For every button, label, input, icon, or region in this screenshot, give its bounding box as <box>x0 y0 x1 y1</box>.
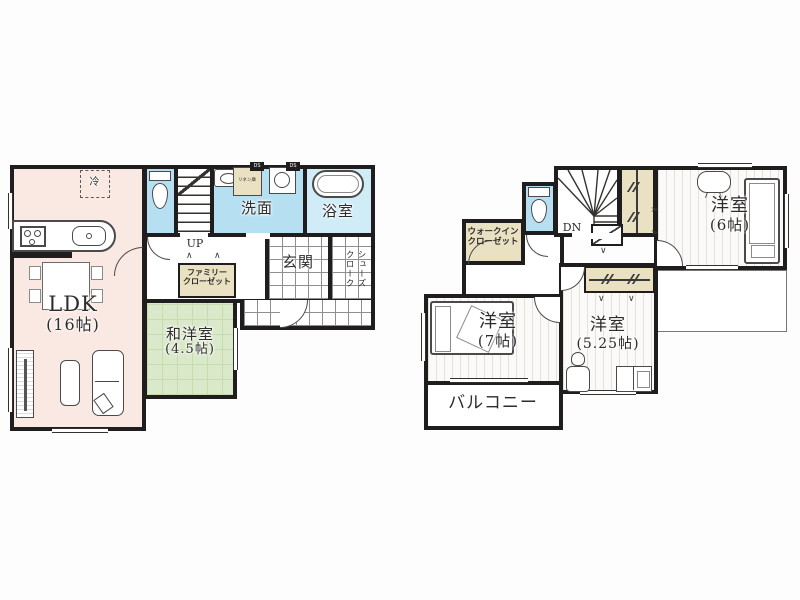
folding-door-mark: ∨ <box>651 229 660 236</box>
toilet-tank-icon <box>149 171 171 181</box>
kitchen-half-wall <box>10 252 72 258</box>
duct-space: DS <box>250 162 264 171</box>
window-bed6-right <box>784 194 789 248</box>
washing-machine-icon <box>269 167 296 194</box>
bed6-label: 洋室 (6帖) <box>688 196 772 234</box>
shoes-cloak-col2: クローク <box>342 240 354 298</box>
bed7-label: 洋室 (7帖) <box>452 312 544 350</box>
stairs-up-label: UP <box>176 238 214 251</box>
cushion <box>93 393 113 414</box>
bed6-size: (6帖) <box>688 217 772 234</box>
hanger-pole <box>589 279 650 281</box>
window-bed7-balcony <box>450 378 528 383</box>
wic-line2: クローゼット <box>464 238 522 248</box>
window-bed6-bottom <box>686 265 738 270</box>
floor-lamp-top <box>571 352 585 366</box>
stairs-dn-label: DN <box>552 222 592 235</box>
linen-label: リネン庫 <box>234 178 260 183</box>
burner-icon <box>24 230 31 237</box>
washroom-label: 洗面 <box>222 200 292 217</box>
shelf-icon <box>616 366 652 392</box>
window-ldk-bottom <box>52 428 108 433</box>
wic-label: ウォークイン クローゼット <box>464 228 522 248</box>
pillow <box>435 306 451 352</box>
bed525-label: 洋室 (5.25帖) <box>562 316 654 352</box>
toilet-tank-icon <box>528 187 550 197</box>
bed525-name: 洋室 <box>562 316 654 336</box>
bed7-name: 洋室 <box>452 312 544 333</box>
shoes-cloak-label: シューズ クローク <box>336 240 366 298</box>
hanger-pole <box>636 170 638 233</box>
shelf-divider <box>633 367 634 390</box>
washitsu-name: 和洋室 <box>145 326 235 343</box>
sink-icon <box>72 226 106 246</box>
tv-board <box>16 350 34 418</box>
refrigerator-label: 冷 <box>81 177 108 189</box>
pillow <box>751 245 775 258</box>
window-bed6-top <box>698 163 752 168</box>
family-closet-label: ファミリー クローゼット <box>180 268 234 286</box>
hanger-mark <box>630 274 636 284</box>
shelf-box <box>637 371 650 388</box>
ldk-size: (16帖) <box>28 316 118 334</box>
linen-cabinet: リネン庫 <box>233 167 262 196</box>
pendant-light-icon <box>697 171 731 193</box>
ldk-name: LDK <box>28 292 118 316</box>
roof-area <box>657 270 787 332</box>
refrigerator-icon: 冷 <box>80 170 110 198</box>
bathroom-label: 浴室 <box>308 203 368 220</box>
stairs-1f <box>174 165 214 237</box>
sofa-seam <box>95 381 119 382</box>
genkan-label: 玄関 <box>274 254 322 271</box>
folding-door-mark: ∧ <box>186 252 193 261</box>
burner-icon <box>34 230 41 237</box>
bed6-name: 洋室 <box>688 196 772 217</box>
hanger-mark <box>604 274 610 284</box>
tv-icon <box>24 359 27 411</box>
folding-door-mark: ∨ <box>628 295 635 304</box>
coffee-table <box>60 360 80 406</box>
bed7-size: (7帖) <box>452 333 544 350</box>
hanger-mark <box>630 182 636 192</box>
folding-door-mark: ∨ <box>598 295 605 304</box>
stove-icon <box>20 226 46 247</box>
bathtub-icon <box>312 170 364 198</box>
washitsu-size: (4.5帖) <box>145 343 235 358</box>
floorplan-canvas: 冷 リネン庫 <box>0 0 800 600</box>
balcony-label: バルコニー <box>432 394 554 414</box>
bed525-size: (5.25帖) <box>562 336 654 352</box>
folding-door-mark: ∨ <box>600 247 607 256</box>
family-closet-line2: クローゼット <box>180 277 234 286</box>
hanger-mark <box>630 212 636 222</box>
window-ldk-left-2 <box>8 348 13 412</box>
tub-inner <box>317 175 359 193</box>
opening-washroom-hall <box>246 233 270 239</box>
chair <box>29 266 41 280</box>
chair <box>91 266 103 280</box>
duct-space: DS <box>286 162 300 171</box>
folding-door-mark: ∨ <box>651 206 660 213</box>
washitsu-label: 和洋室 (4.5帖) <box>145 326 235 358</box>
folding-door-mark: ∧ <box>214 252 221 261</box>
shoes-cloak-col1: シューズ <box>354 240 366 298</box>
drain-icon <box>86 233 92 239</box>
drum-icon <box>274 172 290 188</box>
floor-lamp-icon <box>566 366 590 392</box>
sofa <box>92 350 124 416</box>
window-bed7-left <box>421 313 426 361</box>
burner-icon <box>29 239 35 245</box>
ldk-label: LDK (16帖) <box>28 292 118 335</box>
